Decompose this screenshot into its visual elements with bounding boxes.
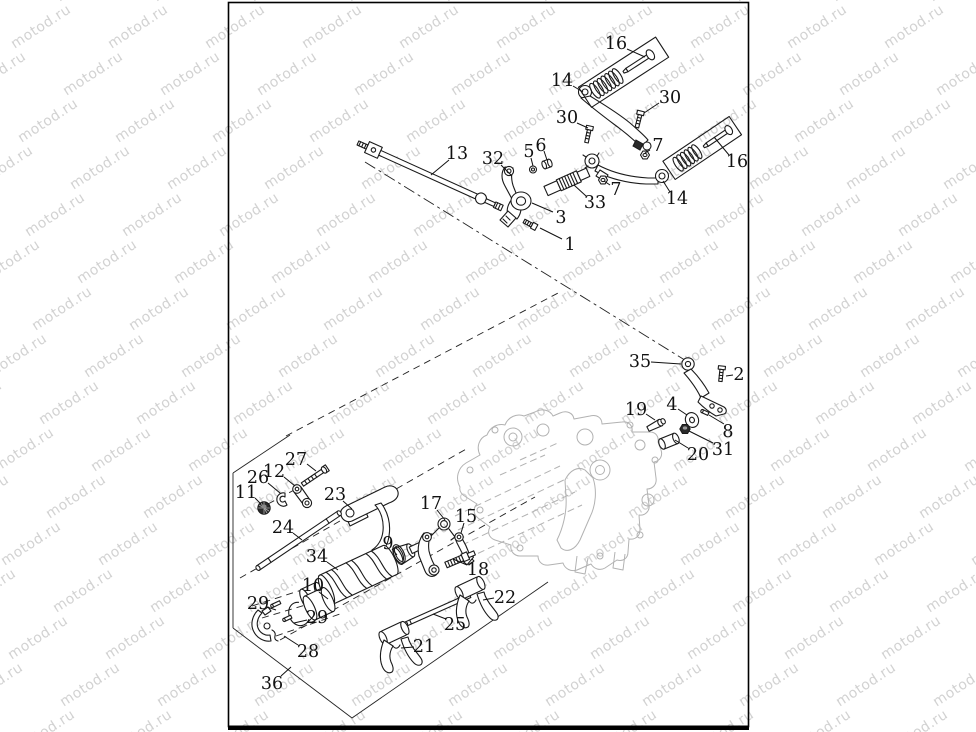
part-callout-17: 17 <box>420 494 442 514</box>
part-callout-10: 10 <box>302 576 324 596</box>
part-callout-31: 31 <box>712 440 734 460</box>
part-26-clip <box>277 493 287 506</box>
part-32-lever <box>500 166 531 227</box>
part-callout-24: 24 <box>272 518 294 538</box>
part-24-fork-shaft <box>255 510 342 571</box>
part-5-washer <box>530 166 537 173</box>
part-callout-13: 13 <box>446 144 468 164</box>
callout-leader <box>651 362 681 364</box>
part-callout-14: 14 <box>551 71 573 91</box>
callout-layer: 1614303013325671673331413521948203127261… <box>235 34 748 694</box>
construction-lines <box>240 162 688 640</box>
part-callout-12: 12 <box>263 462 285 482</box>
part-callout-36: 36 <box>261 674 283 694</box>
part-callout-7: 7 <box>610 180 621 200</box>
part-callout-21: 21 <box>413 637 435 657</box>
part-callout-22: 22 <box>494 588 516 608</box>
part-callout-6: 6 <box>535 136 546 156</box>
part-callout-19: 19 <box>625 400 647 420</box>
part-7-nut-upper <box>641 151 650 159</box>
part-callout-16: 16 <box>605 34 627 54</box>
part-callout-1: 1 <box>564 235 575 255</box>
part-callout-8: 8 <box>722 422 733 442</box>
exploded-parts-diagram: 1614303013325671673331413521948203127261… <box>0 0 976 732</box>
callout-leader <box>726 375 733 376</box>
callout-leader <box>678 409 687 415</box>
part-callout-28: 28 <box>297 642 319 662</box>
part-11-nut <box>258 502 270 514</box>
part-3-bushing <box>511 192 531 210</box>
part-callout-34: 34 <box>306 547 328 567</box>
part-30-bolt-left <box>583 125 593 143</box>
part-callout-23: 23 <box>324 485 346 505</box>
part-callout-20: 20 <box>687 445 709 465</box>
part-callout-18: 18 <box>467 560 489 580</box>
part-14-shift-arm-lower <box>583 153 669 184</box>
part-callout-11: 11 <box>235 483 257 503</box>
part-29-pin-b <box>282 615 292 622</box>
part-callout-16: 16 <box>726 152 748 172</box>
crankcase-outline <box>455 410 662 574</box>
part-callout-4: 4 <box>666 395 677 415</box>
callout-leader <box>689 431 713 443</box>
part-1-bolt <box>522 218 537 230</box>
callout-leader <box>532 203 553 212</box>
part-29-pin-a <box>270 601 281 608</box>
part-callout-14: 14 <box>666 189 688 209</box>
part-callout-7: 7 <box>652 136 663 156</box>
part-callout-35: 35 <box>629 352 651 372</box>
part-callout-15: 15 <box>455 507 477 527</box>
part-callout-2: 2 <box>733 365 744 385</box>
part-12-link <box>293 485 312 508</box>
part-callout-30: 30 <box>659 88 681 108</box>
catalog-page: motod.rumotod.rumotod.rumotod.rumotod.ru… <box>0 0 976 732</box>
callout-leader <box>284 477 295 486</box>
part-callout-30: 30 <box>556 108 578 128</box>
part-2-bolt <box>717 366 726 382</box>
part-17-spring <box>431 518 455 540</box>
callout-leader <box>268 483 280 493</box>
part-callout-25: 25 <box>444 615 466 635</box>
part-callout-9: 9 <box>382 534 393 554</box>
part-6-nut <box>541 159 553 170</box>
callout-leader <box>540 228 562 239</box>
part-callout-3: 3 <box>555 208 566 228</box>
part-19-pin <box>646 417 666 432</box>
part-31-nut <box>680 425 690 434</box>
part-callout-33: 33 <box>584 193 606 213</box>
detent-plate <box>418 533 439 577</box>
part-callout-29: 29 <box>306 608 328 628</box>
part-callout-27: 27 <box>285 450 307 470</box>
callout-leader <box>307 464 316 471</box>
part-callout-32: 32 <box>482 149 504 169</box>
callout-leader <box>644 103 659 113</box>
callout-leader <box>646 414 655 420</box>
part-callout-5: 5 <box>523 142 534 162</box>
part-callout-29: 29 <box>247 594 269 614</box>
part-30-bolt-right <box>633 110 644 128</box>
